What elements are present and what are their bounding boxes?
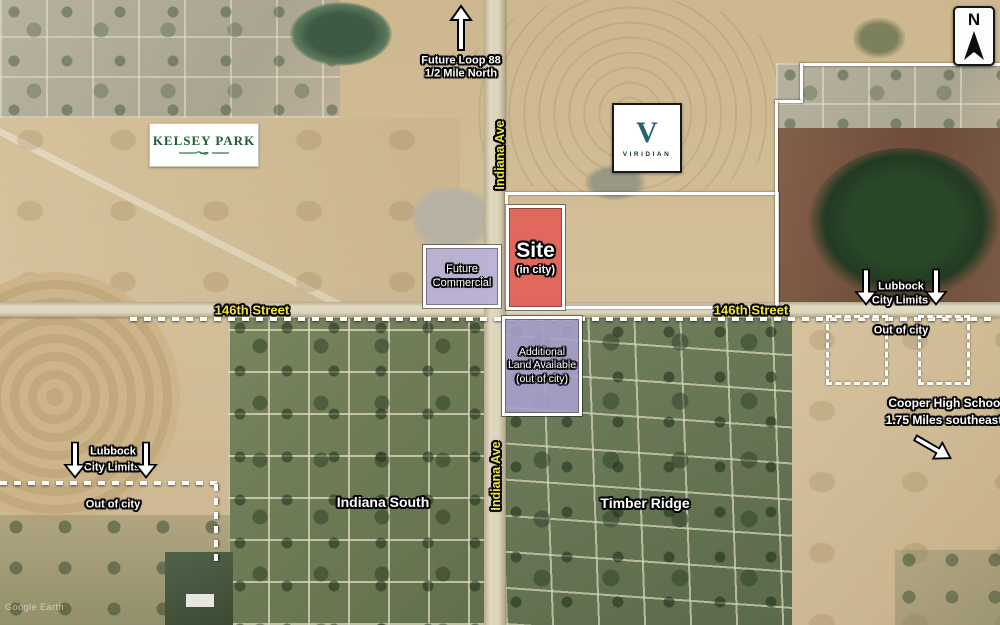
kelsey-park-sign: KELSEY PARK <box>149 123 259 167</box>
city-limit-dash-west <box>0 481 218 485</box>
north-arrow-label: N <box>968 10 980 30</box>
city-limit-down-arrow-icon <box>62 441 88 484</box>
future-loop-line2: 1/2 Mile North <box>425 69 497 80</box>
additional-land-line1: Additional <box>519 346 565 359</box>
city-limit-down-arrow-icon <box>133 441 159 484</box>
146th-street-label-east: 146th Street <box>714 304 788 317</box>
terrain-housing-development-nw <box>0 0 340 118</box>
lubbock-limits-east-line2: City Limits <box>872 296 928 307</box>
future-commercial-line1: Future <box>446 263 478 277</box>
kelsey-park-flourish-icon <box>178 149 230 158</box>
road-indiana-ave <box>484 0 505 625</box>
additional-land-line2: Land Available <box>508 359 576 372</box>
site-subtitle: (in city) <box>516 264 555 278</box>
lubbock-limits-west-line1: Lubbock <box>90 447 136 458</box>
parcel-outline-ne-step-h <box>775 100 803 103</box>
viridian-name: VIRIDIAN <box>623 151 672 158</box>
viridian-logo: V VIRIDIAN <box>612 103 682 173</box>
compass-needle-icon <box>957 30 991 62</box>
terrain-neighborhood-indiana-south <box>228 318 484 625</box>
cooper-line2: 1.75 Miles southeast <box>886 414 1000 426</box>
site-title: Site <box>516 238 555 264</box>
terrain-homes-se <box>895 550 1000 625</box>
terrain-farm-roof <box>186 594 214 607</box>
future-loop-line1: Future Loop 88 <box>421 56 500 67</box>
indiana-ave-label-north: Indiana Ave <box>494 120 507 189</box>
out-of-city-label-east: Out of city <box>874 326 928 337</box>
indiana-south-label: Indiana South <box>337 495 430 509</box>
site-callout-box: Site (in city) <box>506 205 565 310</box>
out-of-city-label-west: Out of city <box>86 500 140 511</box>
city-limit-down-arrow-icon <box>923 268 949 311</box>
terrain-graded-lot <box>413 188 491 248</box>
terrain-homestead-ne <box>853 18 905 58</box>
viridian-initial: V <box>636 118 658 148</box>
kelsey-park-label: KELSEY PARK <box>153 133 255 149</box>
aerial-site-map: Site (in city) Future Commercial Additio… <box>0 0 1000 625</box>
terrain-pond-nw <box>290 2 392 66</box>
north-arrow: N <box>953 6 995 66</box>
map-attribution: Google Earth <box>5 602 64 612</box>
timber-ridge-label: Timber Ridge <box>600 496 689 510</box>
parcel-outline-ne-left <box>775 100 778 305</box>
future-commercial-line2: Commercial <box>433 277 492 291</box>
future-commercial-box: Future Commercial <box>423 245 501 308</box>
city-limit-dash-west-v <box>214 481 218 561</box>
additional-land-line3: (out of city) <box>516 373 568 386</box>
cooper-southeast-arrow-icon <box>918 426 948 475</box>
future-loop-up-arrow-icon <box>448 4 474 57</box>
lubbock-limits-east-line1: Lubbock <box>878 282 924 293</box>
lubbock-limits-west-line2: City Limits <box>84 463 140 474</box>
146th-street-label-west: 146th Street <box>215 304 289 317</box>
additional-land-box: Additional Land Available (out of city) <box>502 316 582 416</box>
terrain-farm-sw <box>165 552 233 625</box>
cooper-line1: Cooper High School <box>888 397 1000 409</box>
terrain-pond-ne <box>808 148 1000 300</box>
indiana-ave-label-south: Indiana Ave <box>490 441 503 510</box>
city-limit-down-arrow-icon <box>853 268 879 311</box>
parcel-outline-ne-step-v <box>800 63 803 103</box>
